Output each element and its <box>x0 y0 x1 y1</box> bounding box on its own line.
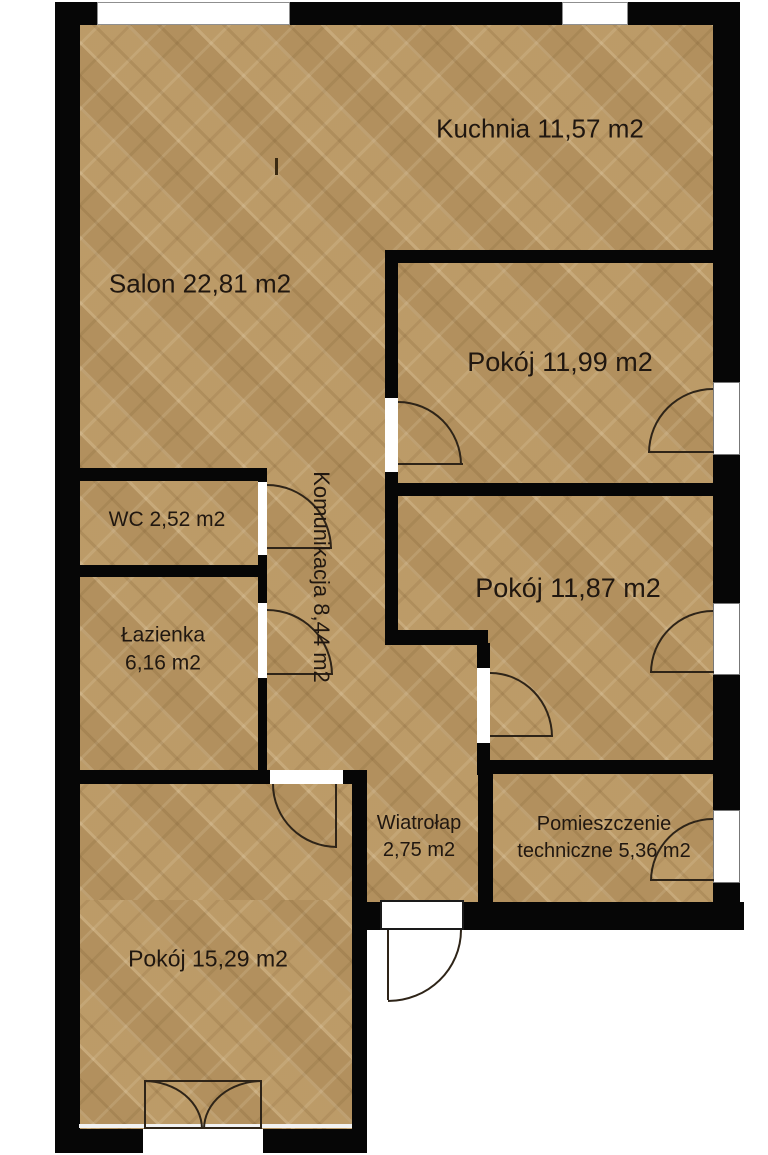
plan-mark <box>275 158 278 175</box>
entrance-door-opening <box>380 900 464 930</box>
balcony-door-leaf-pokoj1199 <box>648 451 714 453</box>
balcony-door-opening-pomtech <box>713 810 740 883</box>
room-label-pokoj-1529: Pokój 15,29 m2 <box>128 943 288 974</box>
door-leaf-pokoj1529 <box>335 784 337 848</box>
door-leaf-pokoj1199 <box>398 463 463 465</box>
balcony-door-leaf-pomtech <box>650 879 714 881</box>
door-leaf-entrance <box>387 930 389 1000</box>
door-opening-wc <box>258 482 267 555</box>
room-label-pom-tech: Pomieszczenie techniczne 5,36 m2 <box>517 811 690 865</box>
wall-kuchnia-pokoj <box>385 250 713 263</box>
room-label-lazienka: Łazienka 6,16 m2 <box>121 622 205 679</box>
door-leaf-pokoj1187 <box>490 735 553 737</box>
door-opening-pokoj1529 <box>270 770 343 784</box>
room-label-pokoj-1187: Pokój 11,87 m2 <box>475 570 661 606</box>
wall-pokoj-pokoj <box>385 483 713 496</box>
floor-plan: Kuchnia 11,57 m2 Salon 22,81 m2 Pokój 11… <box>0 0 768 1155</box>
room-label-wiatrolap-line1: Wiatrołap <box>377 812 461 834</box>
wall-right <box>713 2 740 930</box>
room-label-wiatrolap: Wiatrołap 2,75 m2 <box>377 810 461 864</box>
room-label-pom-tech-line1: Pomieszczenie <box>537 813 672 835</box>
wall-left <box>55 2 80 1153</box>
wall-wc-lazienka <box>79 565 267 577</box>
door-arc-entrance <box>388 930 462 1002</box>
room-label-wc: WC 2,52 m2 <box>109 506 226 534</box>
window-kuchnia-top <box>562 2 628 25</box>
balcony-door-leaf-pokoj1187 <box>650 671 714 673</box>
wall-wiatrolap-pomtech <box>478 774 493 905</box>
window-salon-top <box>97 2 290 25</box>
door-opening-lazienka <box>258 603 267 678</box>
room-label-kuchnia: Kuchnia 11,57 m2 <box>436 111 644 146</box>
wall-wiatrolap-left <box>352 770 367 1153</box>
wall-corridor-bottom <box>385 630 488 645</box>
room-label-salon: Salon 22,81 m2 <box>109 266 291 301</box>
balcony-door-opening-pokoj1187 <box>713 603 740 675</box>
wall-pokoj1187-bottom <box>477 760 713 774</box>
room-label-wiatrolap-line2: 2,75 m2 <box>383 839 455 861</box>
room-label-pokoj-1199: Pokój 11,99 m2 <box>467 344 653 380</box>
door-opening-pokoj1187 <box>477 668 490 743</box>
door-opening-bottom-balcony <box>143 1129 263 1155</box>
wall-wc-top <box>79 468 267 481</box>
balcony-door-opening-pokoj1199 <box>713 382 740 455</box>
room-label-komunikacja: Komunikacja 8,44 m2 <box>306 471 336 683</box>
room-label-pom-tech-line2: techniczne 5,36 m2 <box>517 840 690 862</box>
door-opening-pokoj1199 <box>385 398 398 472</box>
room-label-lazienka-line2: 6,16 m2 <box>125 652 201 675</box>
room-label-lazienka-line1: Łazienka <box>121 624 205 647</box>
